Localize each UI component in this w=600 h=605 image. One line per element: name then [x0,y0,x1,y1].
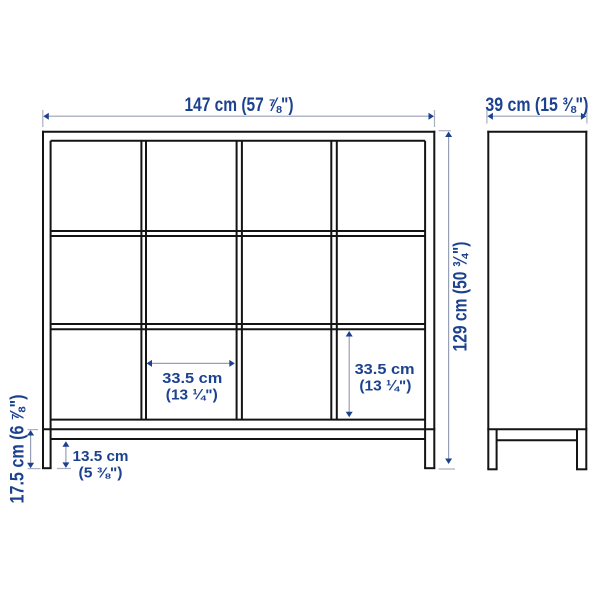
svg-text:(13 ¼"): (13 ¼") [166,387,218,404]
svg-text:129 cm (50 ¾"): 129 cm (50 ¾") [450,242,471,352]
svg-text:13.5 cm: 13.5 cm [73,448,129,465]
svg-text:(5 ⅜"): (5 ⅜") [79,464,123,481]
svg-text:33.5 cm: 33.5 cm [355,361,415,378]
svg-text:147 cm (57 ⅞"): 147 cm (57 ⅞") [185,95,294,116]
svg-text:(13 ¼"): (13 ¼") [359,378,411,395]
svg-text:39 cm (15 ⅜"): 39 cm (15 ⅜") [485,95,588,116]
svg-text:33.5 cm: 33.5 cm [162,370,222,387]
svg-text:17.5 cm (6 ⅞"): 17.5 cm (6 ⅞") [8,395,29,504]
